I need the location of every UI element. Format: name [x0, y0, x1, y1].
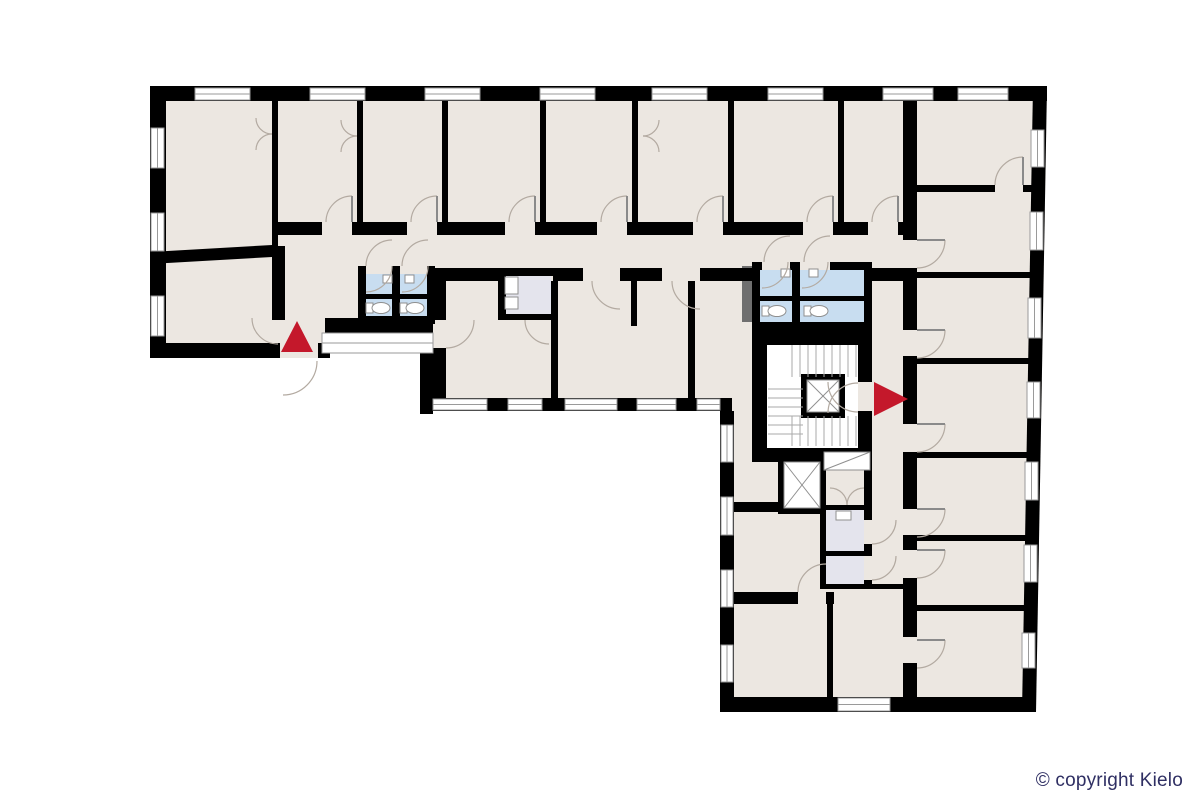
- wall: [826, 592, 834, 604]
- wall: [917, 605, 1024, 611]
- wall: [734, 502, 780, 512]
- wall: [917, 185, 995, 192]
- wall: [553, 268, 583, 281]
- wall: [820, 584, 917, 589]
- wall: [277, 222, 322, 235]
- wall: [632, 101, 638, 222]
- wall: [700, 268, 752, 281]
- wall: [820, 551, 872, 556]
- wall: [498, 268, 553, 276]
- wall: [903, 268, 917, 330]
- wall: [631, 281, 637, 326]
- wall: [917, 358, 1029, 364]
- wall: [688, 281, 695, 398]
- wall: [903, 356, 917, 424]
- wall: [917, 535, 1026, 541]
- wall: [872, 268, 903, 281]
- wall: [903, 101, 917, 240]
- floorplan-view: © copyright Kielo: [0, 0, 1200, 800]
- wall: [827, 604, 833, 697]
- wall: [820, 505, 826, 586]
- wall: [917, 452, 1027, 458]
- wall: [352, 222, 407, 235]
- wall: [540, 101, 546, 222]
- wall: [433, 348, 446, 398]
- wall: [358, 316, 435, 324]
- toilet-bowl: [372, 303, 390, 314]
- wall: [917, 272, 1030, 278]
- wall: [357, 101, 363, 222]
- wall: [838, 101, 844, 222]
- wall: [858, 330, 872, 382]
- sink: [405, 275, 414, 283]
- wall: [358, 294, 435, 299]
- sink: [836, 511, 851, 520]
- wall: [437, 222, 505, 235]
- toilet-bowl: [810, 306, 828, 317]
- wall: [620, 268, 662, 281]
- wall: [498, 314, 551, 320]
- floorplan-canvas: [0, 0, 1200, 800]
- wall: [442, 101, 448, 222]
- wall: [752, 296, 872, 301]
- sink: [505, 297, 518, 309]
- wall: [903, 452, 917, 509]
- sink: [505, 277, 518, 294]
- wall: [833, 222, 868, 235]
- wall: [723, 222, 803, 235]
- wall: [551, 281, 558, 398]
- wall: [627, 222, 693, 235]
- wall: [272, 246, 285, 320]
- wall: [446, 268, 498, 281]
- wall: [903, 663, 917, 697]
- toilet-bowl: [406, 303, 424, 314]
- utility-room: [826, 556, 864, 584]
- toilet-bowl: [768, 306, 786, 317]
- wall: [728, 101, 734, 222]
- copyright-label: © copyright Kielo: [1036, 770, 1183, 792]
- wall: [903, 535, 917, 550]
- wall: [272, 101, 278, 248]
- wall: [734, 592, 798, 604]
- door-swing: [283, 361, 317, 395]
- wall: [150, 343, 280, 358]
- wall: [752, 322, 872, 330]
- wall: [535, 222, 597, 235]
- wall: [858, 411, 872, 448]
- wall: [752, 330, 872, 345]
- wall: [752, 330, 767, 460]
- sink: [809, 269, 818, 277]
